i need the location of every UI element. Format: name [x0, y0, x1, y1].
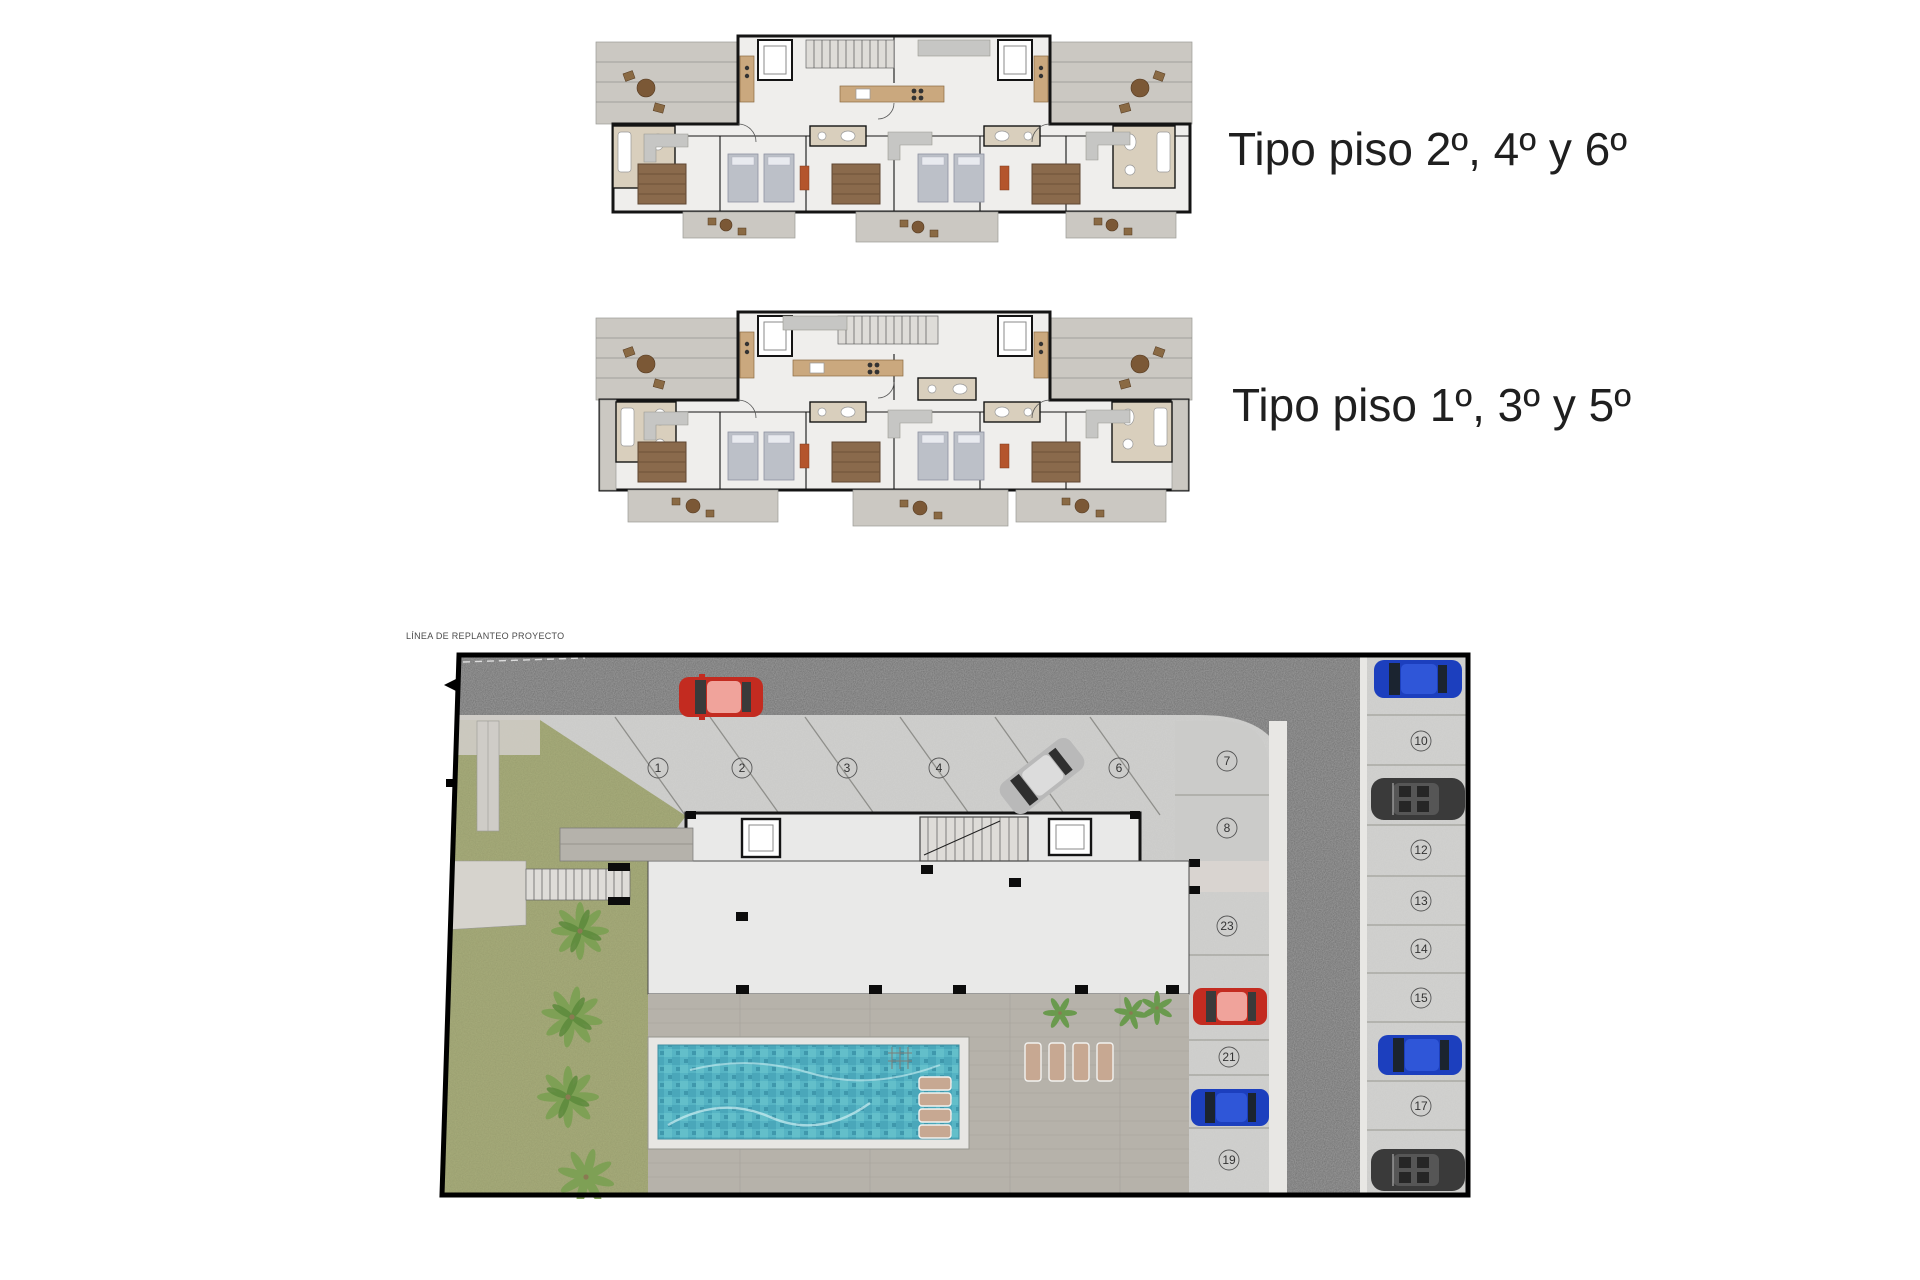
floor-plan-lower [588, 302, 1200, 532]
svg-text:1: 1 [655, 761, 662, 775]
car-dark-convertible [1371, 1149, 1465, 1191]
floor-plan-lower-label: Tipo piso 1º, 3º y 5º [1232, 378, 1631, 432]
svg-text:2: 2 [739, 761, 746, 775]
swimming-pool [648, 1037, 969, 1149]
stair-core [838, 316, 938, 344]
svg-text:4: 4 [936, 761, 943, 775]
svg-text:10: 10 [1414, 734, 1428, 748]
terrace-top-left [596, 42, 738, 124]
svg-text:19: 19 [1222, 1153, 1236, 1167]
site-plan: 1 2 3 4 6 7 8 23 21 19 10 12 13 14 15 17… [400, 625, 1475, 1225]
building-footprint [560, 811, 1189, 994]
svg-text:7: 7 [1224, 754, 1231, 768]
svg-text:15: 15 [1414, 991, 1428, 1005]
boundary-mark [446, 779, 456, 787]
stair-core [920, 817, 1028, 861]
svg-text:6: 6 [1116, 761, 1123, 775]
svg-text:3: 3 [844, 761, 851, 775]
entrance-stairs [526, 863, 630, 905]
svg-text:13: 13 [1414, 894, 1428, 908]
svg-text:17: 17 [1414, 1099, 1428, 1113]
balconies [683, 212, 1176, 242]
svg-text:12: 12 [1414, 843, 1428, 857]
floor-plan-upper [588, 28, 1200, 246]
canopy [560, 828, 693, 861]
curb [1360, 655, 1367, 1195]
svg-text:14: 14 [1414, 942, 1428, 956]
car-dark-convertible [1371, 778, 1465, 820]
svg-text:23: 23 [1220, 919, 1234, 933]
elevator-core [1049, 819, 1091, 855]
pool-ladder [888, 1047, 912, 1069]
car-blue [1191, 1089, 1269, 1126]
side-entrance-walkway [1189, 861, 1269, 892]
side-terrace-left [600, 400, 616, 490]
car-blue [1374, 660, 1462, 698]
side-terrace-right [1172, 400, 1188, 490]
stair-core [806, 40, 894, 68]
sofa [918, 40, 990, 56]
terrace-top-right [1050, 42, 1192, 124]
car-blue [1378, 1035, 1462, 1075]
car-red-street [679, 674, 763, 720]
curb [1269, 721, 1287, 1195]
svg-text:8: 8 [1224, 821, 1231, 835]
boundary-label: LÍNEA DE REPLANTEO PROYECTO [406, 631, 564, 641]
page: Tipo piso 2º, 4º y 6º [0, 0, 1920, 1280]
terrace-top-left [596, 318, 738, 400]
svg-text:21: 21 [1222, 1050, 1236, 1064]
floor-plan-upper-label: Tipo piso 2º, 4º y 6º [1228, 122, 1627, 176]
sofa [783, 316, 847, 330]
terrace-top-right [1050, 318, 1192, 400]
car-red [1193, 988, 1267, 1025]
balconies [628, 490, 1166, 526]
